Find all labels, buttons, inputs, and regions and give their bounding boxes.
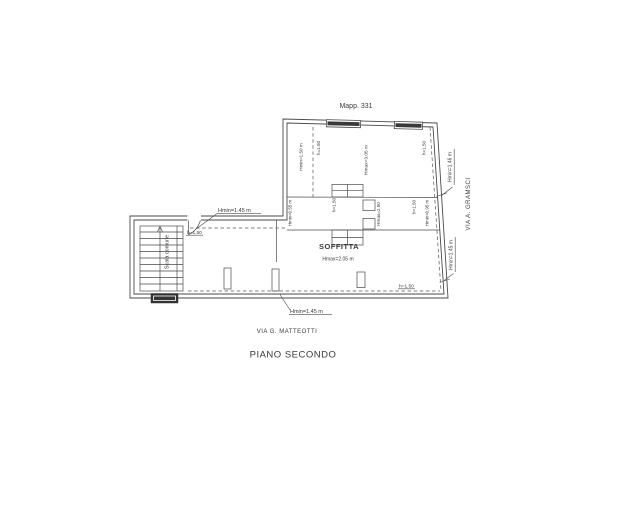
upper-ridge-height: Hmax=3.05 m	[364, 145, 370, 175]
window-sash	[396, 125, 422, 126]
floor-plan-page: Mapp. 331 PIANO SECONDO VIA G. MATTEOTTI…	[0, 0, 640, 511]
mid-wall-left-height: Hmin=0.55 m	[288, 200, 293, 227]
stairs-label: Scala comune	[165, 235, 171, 269]
street-label-bottom: VIA G. MATTEOTTI	[257, 329, 318, 335]
upper-dash-right-height: h=1.50	[422, 140, 427, 155]
dim-right-bottom: Hmin=1.45 m	[449, 240, 455, 270]
staircase	[140, 226, 183, 291]
window-top-left	[326, 123, 361, 124]
wall-tick-right-bottom	[440, 279, 451, 283]
mid-chimney-height: Hmax=2.50	[376, 202, 381, 226]
chimney-mid-2	[363, 219, 375, 230]
room-height-label: Hmax=2.05 m	[322, 257, 353, 263]
roof-window-upper	[332, 185, 363, 198]
window-bottom	[151, 294, 178, 304]
chimney-soffitta-3	[357, 272, 365, 288]
chimney-mid-1	[363, 200, 375, 211]
contour-vertical-right	[430, 127, 441, 291]
window-top-right	[394, 125, 423, 126]
chimney-soffitta-1	[224, 268, 231, 289]
dim-bottom-dash: h=1.50	[399, 284, 414, 290]
dim-right-top: Hmin=1.46 m	[448, 152, 454, 182]
room-label-soffitta: SOFFITTA	[319, 242, 359, 251]
upper-wall-left-height: Hmin=1.50 m	[299, 143, 304, 171]
leader-bottom-line	[280, 295, 290, 311]
stair-outline	[140, 226, 183, 291]
dim-bottom: Hmin=1.45 m	[290, 309, 323, 315]
mid-dash-right-height: h=1.50	[412, 199, 417, 214]
stair-treads	[140, 232, 183, 284]
map-reference: Mapp. 331	[339, 103, 372, 110]
chimney-soffitta-2	[272, 269, 279, 291]
street-label-right: VIA A. GRAMSCI	[466, 177, 472, 230]
mid-dash-left-height: h=1.50	[332, 197, 337, 212]
window-bottom-block	[151, 294, 178, 304]
floor-plan-canvas: Mapp. 331 PIANO SECONDO VIA G. MATTEOTTI…	[0, 0, 640, 511]
dim-strip-top-dash: h=1.50	[187, 230, 202, 236]
mid-wall-right-height: Hmin=0.95 m	[425, 200, 430, 227]
leader-lines	[186, 149, 455, 315]
dim-strip-top: Hmin=1.45 m	[218, 208, 251, 214]
door-opening	[188, 215, 202, 221]
page-title: PIANO SECONDO	[250, 350, 337, 361]
window-sash	[328, 123, 360, 124]
upper-dash-left-height: h=1.50	[316, 140, 321, 155]
